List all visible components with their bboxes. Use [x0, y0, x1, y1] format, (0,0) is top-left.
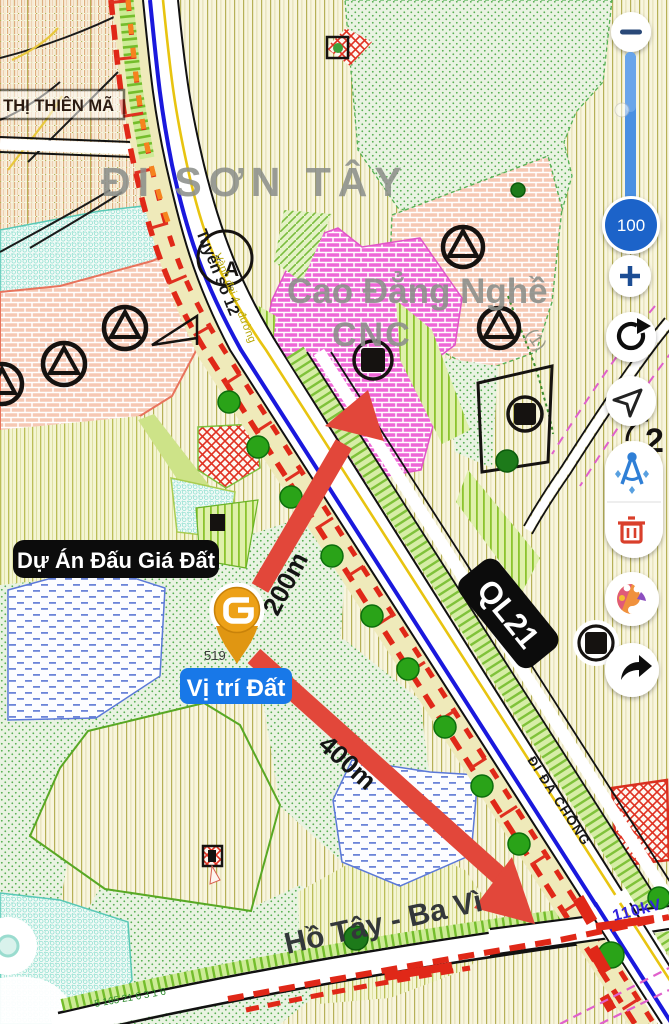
svg-text:Dự Án Đấu Giá Đất: Dự Án Đấu Giá Đất: [17, 548, 216, 573]
svg-text:CNC: CNC: [332, 316, 412, 354]
svg-text:Ị THỊ THIÊN MÃ: Ị THỊ THIÊN MÃ: [0, 95, 114, 115]
svg-text:519: 519: [204, 648, 226, 663]
svg-text:100: 100: [617, 216, 645, 235]
svg-text:ĐI SƠN TÂY: ĐI SƠN TÂY: [101, 159, 409, 205]
svg-text:Cao Đẳng Nghề: Cao Đẳng Nghề: [287, 271, 548, 311]
svg-text:Vị trí Đất: Vị trí Đất: [187, 675, 286, 702]
